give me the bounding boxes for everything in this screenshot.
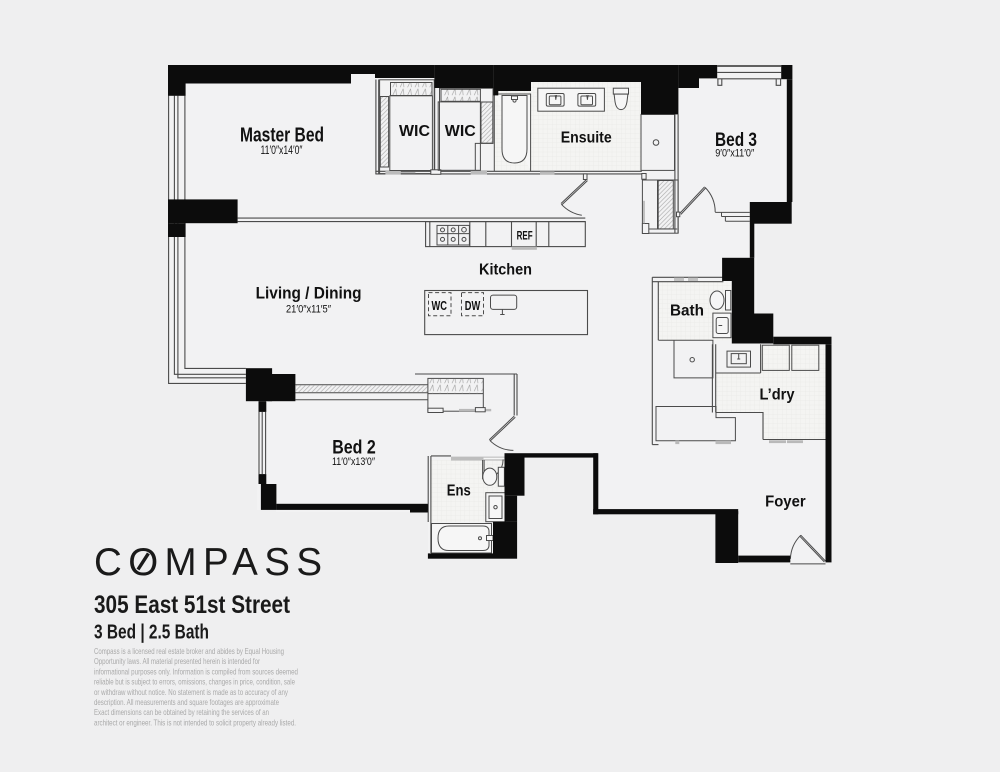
svg-text:3 Bed | 2.5 Bath: 3 Bed | 2.5 Bath [94, 622, 209, 644]
svg-text:11′0″x13′0″: 11′0″x13′0″ [332, 456, 375, 468]
svg-text:Exact dimensions can be obtain: Exact dimensions can be obtained by reta… [94, 707, 269, 717]
svg-text:L’dry: L’dry [760, 387, 795, 404]
svg-text:Master Bed: Master Bed [240, 125, 324, 147]
svg-text:Opportunity laws. All material: Opportunity laws. All material presented… [94, 656, 260, 666]
svg-text:305 East 51st Street: 305 East 51st Street [94, 591, 291, 619]
svg-text:REF: REF [517, 231, 533, 243]
svg-text:Bath: Bath [670, 303, 704, 320]
svg-text:Compass is a licensed real est: Compass is a licensed real estate broker… [94, 646, 284, 656]
svg-text:Living / Dining: Living / Dining [256, 285, 362, 303]
svg-text:COMPASS: COMPASS [94, 541, 322, 584]
svg-text:WIC: WIC [445, 123, 476, 140]
svg-text:WC: WC [431, 298, 447, 313]
svg-text:Ens: Ens [447, 483, 471, 500]
svg-text:Kitchen: Kitchen [479, 262, 532, 279]
svg-text:9′0″x11′0″: 9′0″x11′0″ [715, 148, 754, 160]
svg-text:description. All measurements: description. All measurements and square… [94, 697, 279, 707]
svg-text:Ensuite: Ensuite [561, 130, 612, 147]
svg-text:informational purposes only. I: informational purposes only. Information… [94, 666, 298, 676]
svg-text:or withdraw without notice. No: or withdraw without notice. No statement… [94, 687, 289, 697]
svg-text:11′0″x14′0″: 11′0″x14′0″ [261, 145, 303, 157]
svg-text:architect or engineer. This is: architect or engineer. This is not inten… [94, 717, 296, 727]
svg-text:WIC: WIC [399, 123, 430, 140]
svg-text:Foyer: Foyer [765, 494, 806, 511]
svg-text:21′0″x11′5″: 21′0″x11′5″ [286, 304, 331, 316]
svg-text:reliable but is subject to err: reliable but is subject to errors, omiss… [94, 677, 295, 687]
svg-text:DW: DW [465, 298, 481, 313]
